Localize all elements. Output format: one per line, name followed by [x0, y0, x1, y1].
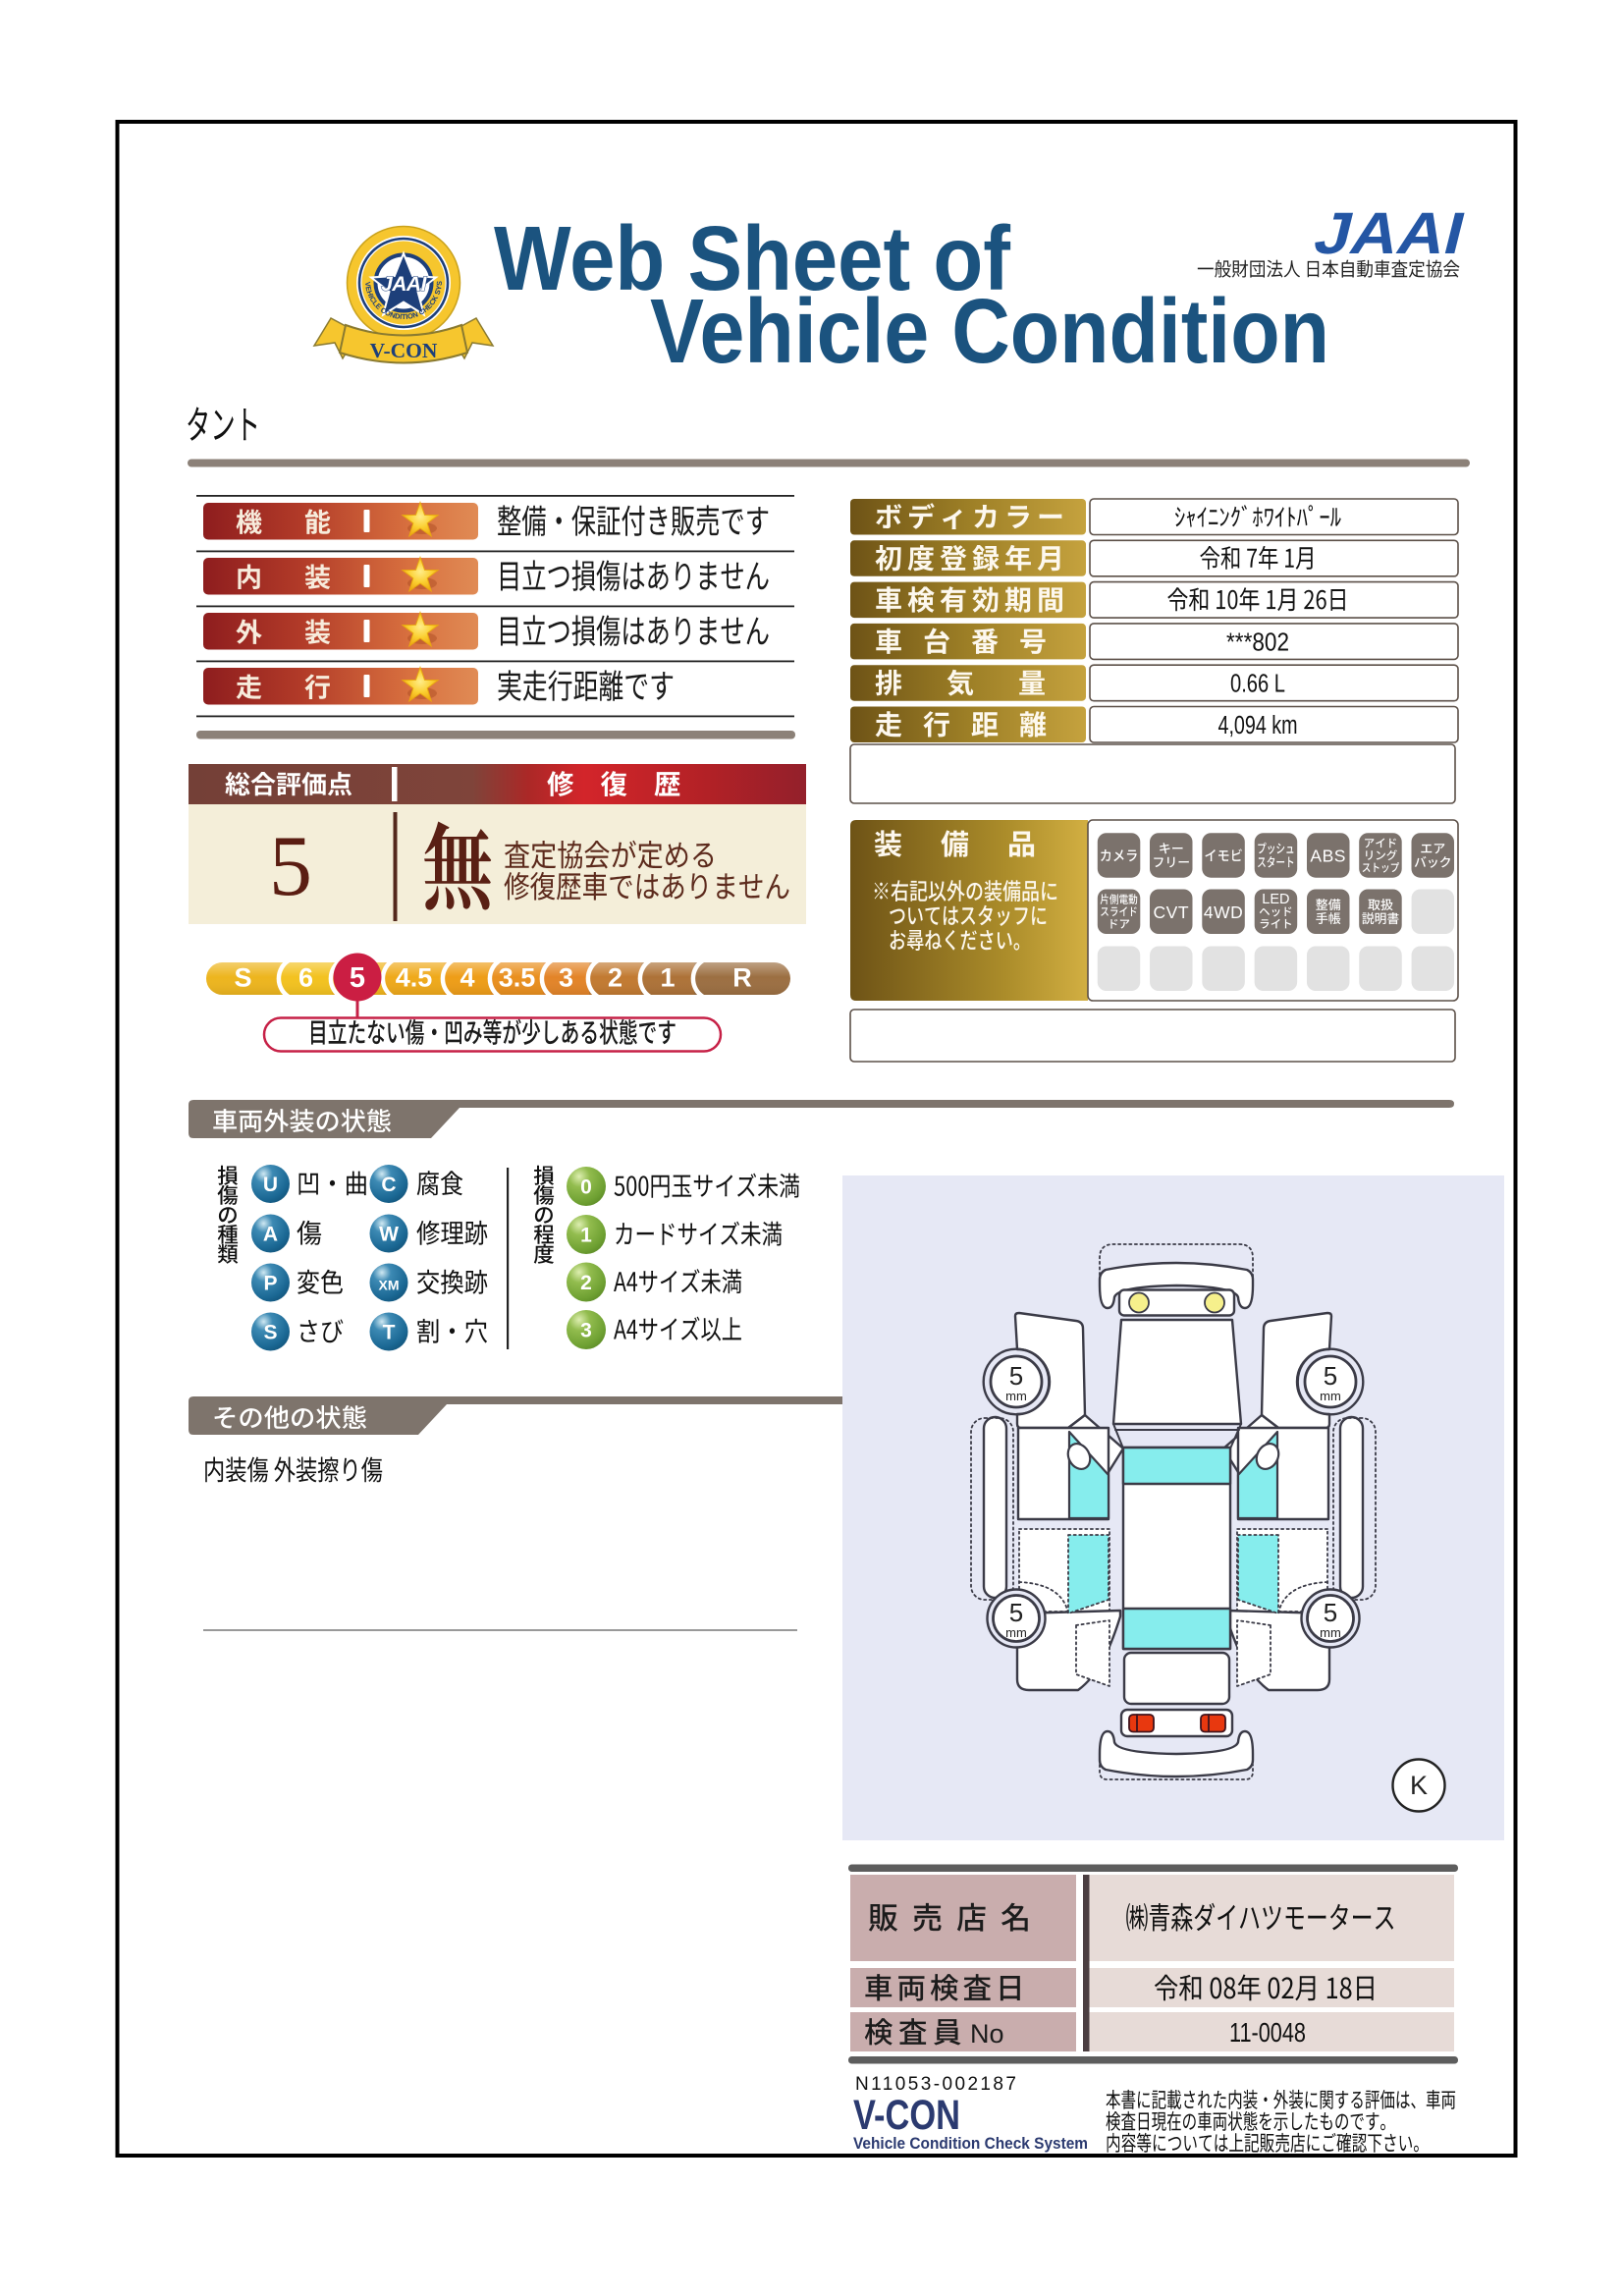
svg-text:mm: mm: [1320, 1389, 1341, 1403]
svg-text:S: S: [263, 1322, 277, 1344]
svg-text:A: A: [263, 1224, 278, 1246]
svg-text:JAAI: JAAI: [1308, 200, 1472, 266]
svg-text:5: 5: [350, 962, 365, 994]
svg-text:mm: mm: [1320, 1625, 1341, 1640]
svg-text:5: 5: [1324, 1361, 1337, 1391]
svg-text:3: 3: [580, 1320, 592, 1342]
svg-text:S: S: [234, 963, 251, 993]
svg-text:4: 4: [460, 963, 474, 993]
svg-text:V-CON: V-CON: [370, 339, 438, 362]
svg-text:3.5: 3.5: [499, 963, 536, 993]
svg-text:T: T: [383, 1322, 396, 1344]
svg-text:5: 5: [1009, 1361, 1023, 1391]
svg-text:5: 5: [1009, 1598, 1023, 1627]
svg-text:5: 5: [269, 819, 312, 914]
svg-text:LED: LED: [1262, 892, 1289, 907]
svg-text:C: C: [381, 1174, 396, 1196]
svg-text:3: 3: [559, 963, 573, 993]
svg-text:CVT: CVT: [1154, 902, 1190, 922]
svg-text:4.5: 4.5: [396, 963, 433, 993]
svg-text:W: W: [379, 1224, 399, 1246]
svg-text:0: 0: [580, 1176, 592, 1199]
svg-text:mm: mm: [1005, 1389, 1027, 1403]
svg-text:0.66 L: 0.66 L: [1230, 671, 1285, 698]
svg-text:XM: XM: [379, 1278, 400, 1293]
svg-text:1: 1: [580, 1225, 592, 1247]
svg-text:Vehicle Condition: Vehicle Condition: [650, 280, 1329, 382]
svg-text:1: 1: [660, 963, 675, 993]
svg-text:2: 2: [580, 1272, 592, 1294]
svg-text:6: 6: [298, 963, 313, 993]
svg-text:4,094 km: 4,094 km: [1218, 712, 1298, 739]
svg-text:R: R: [732, 963, 752, 993]
svg-text:Vehicle Condition Check System: Vehicle Condition Check System: [853, 2134, 1088, 2153]
svg-text:No: No: [970, 2019, 1004, 2049]
svg-text:4WD: 4WD: [1204, 902, 1243, 922]
svg-text:***802: ***802: [1226, 627, 1289, 656]
svg-text:JAAI: JAAI: [381, 273, 428, 296]
svg-text:ABS: ABS: [1310, 847, 1346, 866]
svg-text:2: 2: [608, 963, 622, 993]
svg-text:K: K: [1410, 1771, 1428, 1800]
svg-text:U: U: [263, 1174, 278, 1196]
svg-text:P: P: [263, 1273, 277, 1295]
svg-text:11-0048: 11-0048: [1229, 2017, 1306, 2048]
svg-text:V-CON: V-CON: [853, 2092, 960, 2139]
svg-text:5: 5: [1324, 1598, 1337, 1627]
svg-text:mm: mm: [1005, 1625, 1027, 1640]
